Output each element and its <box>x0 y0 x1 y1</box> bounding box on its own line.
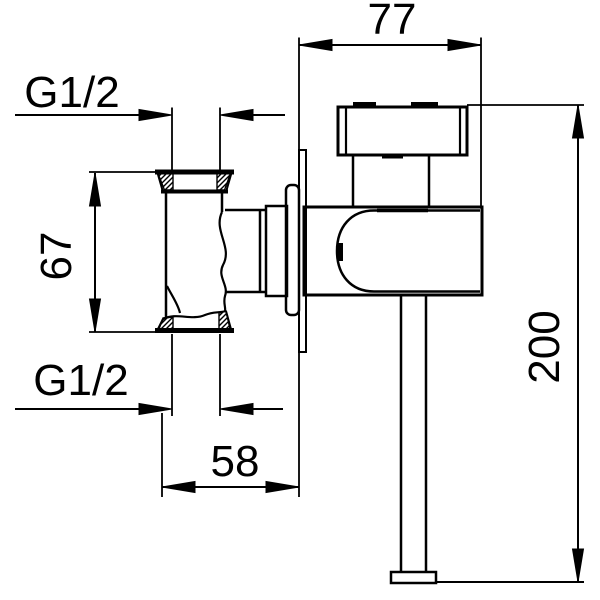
arrow-right-icon <box>448 40 481 51</box>
arrow-right-icon <box>266 482 299 493</box>
dim-label-height-right: 200 <box>523 310 567 383</box>
arrow-right-icon <box>139 110 172 121</box>
arrow-left-icon <box>220 404 253 415</box>
arrow-up-icon <box>90 173 101 206</box>
dim-label-width-top: 77 <box>368 0 417 42</box>
arrow-down-icon <box>573 549 584 582</box>
cartridge-profile <box>337 211 480 292</box>
dim-width-top <box>299 38 481 208</box>
handle-stem <box>353 155 429 211</box>
outlet-pipe <box>391 295 436 583</box>
dim-thread-top <box>15 108 285 172</box>
dim-label-thread-top: G1/2 <box>24 71 119 115</box>
thread-nut-bottom <box>159 317 173 329</box>
valve-outline <box>155 105 482 584</box>
dim-label-width-bottom: 58 <box>211 440 260 484</box>
valve-body <box>304 207 482 295</box>
arrow-down-icon <box>90 299 101 332</box>
dim-height-left <box>89 172 163 332</box>
technical-drawing-canvas: 77 G1/2 67 G1/2 58 200 <box>0 0 600 600</box>
arrow-left-icon <box>162 482 195 493</box>
arrow-left-icon <box>299 40 332 51</box>
dim-label-thread-bottom: G1/2 <box>33 359 128 403</box>
break-line <box>220 212 226 312</box>
arrow-left-icon <box>220 110 253 121</box>
valve-handle <box>338 105 467 157</box>
pipe-base-plate <box>391 572 436 583</box>
supply-fitting <box>155 171 234 331</box>
dim-label-height-left: 67 <box>35 232 79 281</box>
arrow-right-icon <box>139 404 172 415</box>
arrow-up-icon <box>573 105 584 138</box>
union-sleeve <box>266 206 287 296</box>
supply-connector <box>225 206 287 296</box>
